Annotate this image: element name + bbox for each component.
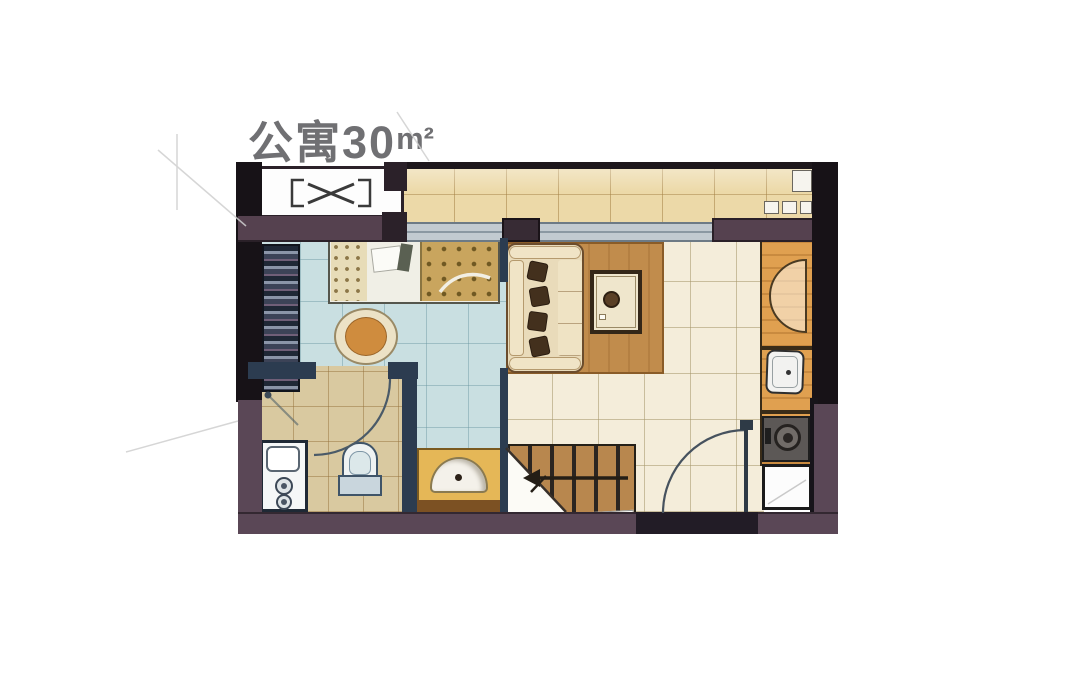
living-room-window [538,222,714,242]
wall-under-ac [238,216,406,242]
balcony-appliance [800,201,812,214]
sofa-seat [558,260,582,356]
sink-drain [786,370,791,375]
wall-ac-corner [384,162,407,191]
sofa-armrest [509,246,581,259]
bathroom-wall-right [402,362,417,512]
bedroom-window [404,222,504,242]
leader-line [126,421,238,452]
sofa-pillow [528,285,550,307]
sofa-pillow [527,311,548,332]
washing-machine-lid [266,446,300,472]
bed-blanket [420,242,498,301]
tea-tray [603,291,620,308]
washer-drum-center [281,499,287,505]
balcony-appliance [782,201,797,214]
bed-pillows [331,242,367,301]
leader-line [158,150,246,226]
balcony-appliance [792,170,812,192]
stove-knob [765,428,771,444]
air-conditioner-platform [258,166,404,218]
balcony-appliance [764,201,779,214]
wall-top-right [712,218,816,242]
counter-divider [760,410,814,414]
sofa-pillow [526,260,549,283]
wall-bottom-entry [636,512,758,534]
tea-cup [599,314,606,320]
bathroom-wall [248,362,316,379]
plan-title-text: 公寓30 [248,117,396,168]
washer-drum-center [281,483,287,489]
wall-ac-pier [382,212,407,242]
partition-bedroom-living [500,238,508,282]
plan-title-unit: m² [396,121,434,156]
wall-right [812,162,838,408]
vanity-base [417,500,503,512]
wall-left-lower [238,400,262,520]
toilet-tank [338,475,382,496]
partition-bedroom-living [500,368,508,512]
basin-drain [455,474,462,481]
wall-top [402,162,816,169]
kitchen-sink-basin [772,356,798,388]
armchair-cushion [345,317,387,356]
sofa-armrest [509,357,581,370]
stove-burner-center [783,433,793,443]
refrigerator [762,464,812,510]
sofa-pillow [528,335,551,358]
floor-plan-image: 公寓30m² [0,0,1080,693]
balcony-floor [402,166,816,224]
toilet-seat [349,451,371,475]
sofa-backrest [509,260,524,356]
